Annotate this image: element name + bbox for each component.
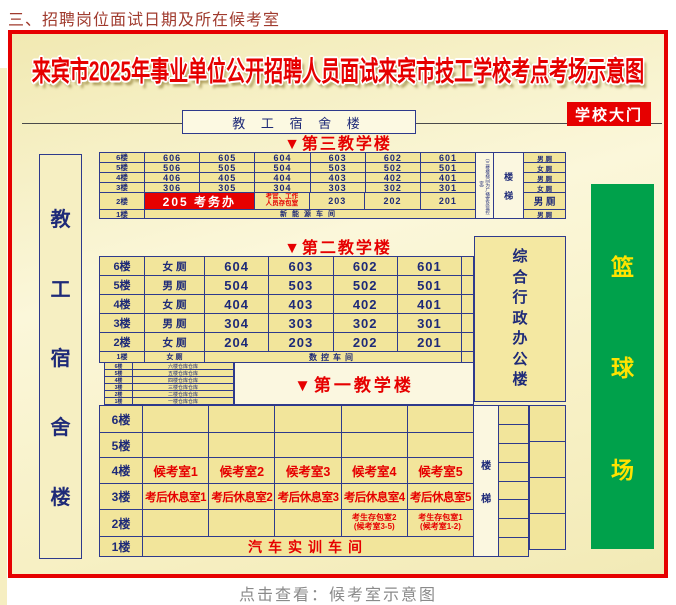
table-row: 3楼 考后休息室1 考后休息室2 考后休息室3 考后休息室4 考后休息室5 bbox=[100, 484, 474, 510]
empty-cell bbox=[209, 433, 275, 458]
building3-toilet-column: 男 厕 女 厕 男 厕 女 厕 男 厕 男 厕 bbox=[524, 153, 566, 219]
building1-table: 6楼 5楼 4楼 候考室1 候考室2 候考室3 候考室4 bbox=[99, 405, 529, 557]
empty-cell bbox=[342, 406, 408, 433]
room-cell: 203 bbox=[310, 193, 365, 210]
exam-venue-map-image[interactable]: 来宾市2025年事业单位公开招聘人员面试来宾市技工学校考点考场示意图 教 工 宿… bbox=[8, 30, 668, 578]
dorm-building-char: 教 bbox=[51, 203, 71, 232]
table-row: 4楼 候考室1 候考室2 候考室3 候考室4 候考室5 bbox=[100, 458, 474, 484]
room-cell: 302 bbox=[334, 314, 398, 333]
table-row: 6楼 六楼仓库仓库 bbox=[105, 363, 234, 370]
empty-cell bbox=[499, 519, 529, 538]
room-cell: 203 bbox=[269, 333, 333, 352]
building1-rooms-grid: 6楼 5楼 4楼 候考室1 候考室2 候考室3 候考室4 bbox=[100, 406, 474, 557]
table-row: 4楼 406 405 404 403 402 401 bbox=[100, 173, 476, 183]
floor-label: 5楼 bbox=[100, 433, 143, 458]
floor-label: 4楼 bbox=[105, 377, 133, 384]
table-row: 6楼 bbox=[100, 406, 474, 433]
toilet-cell: 男 厕 bbox=[524, 173, 566, 183]
building2-edge-column bbox=[462, 257, 474, 363]
room-cell: 402 bbox=[366, 173, 421, 183]
dorm-building-strip: 教 工 宿 舍 楼 bbox=[39, 154, 82, 559]
table-row: 3楼 男 厕 304 303 302 301 bbox=[100, 314, 462, 333]
rest-room-cell: 考后休息室4 bbox=[342, 484, 408, 510]
building2-title: ▼第二教学楼 bbox=[12, 234, 664, 258]
candidate-bag-storage-cell: 考生存包室2 (候考室3-5) bbox=[342, 510, 408, 537]
empty-cell bbox=[275, 510, 341, 537]
basketball-court-char: 球 bbox=[611, 349, 634, 383]
dorm-building-char: 工 bbox=[51, 273, 71, 302]
stairs-char: 梯 bbox=[481, 490, 491, 505]
building3-table: 6楼 606 605 604 603 602 601 5楼 506 505 50… bbox=[99, 152, 566, 219]
toilet-cell: 女 厕 bbox=[145, 257, 205, 276]
annex-rows: 6楼 六楼仓库仓库 5楼 五楼仓库仓库 4楼 四楼仓库仓库 3楼 三楼仓库仓库 … bbox=[105, 363, 234, 405]
page-left-accent-bar bbox=[0, 68, 7, 605]
building3-note-column: （三楼楼梯间为广播室及监控室） bbox=[476, 153, 494, 219]
waiting-room-cell: 候考室1 bbox=[143, 458, 209, 484]
empty-cell bbox=[143, 510, 209, 537]
annex-cell: 四楼仓库仓库 bbox=[133, 377, 234, 384]
table-row: 3楼 三楼仓库仓库 bbox=[105, 384, 234, 391]
dorm-building-char: 舍 bbox=[51, 411, 71, 440]
empty-cell bbox=[499, 538, 529, 557]
floor-label: 5楼 bbox=[105, 370, 133, 377]
empty-cell bbox=[462, 257, 474, 276]
toilet-cell: 男 厕 bbox=[145, 276, 205, 295]
admin-building-char: 行 bbox=[512, 290, 527, 307]
toilet-cell: 男 厕 bbox=[524, 153, 566, 163]
annex-cell: 一楼仓库仓库 bbox=[133, 398, 234, 405]
admin-building-char: 办 bbox=[512, 331, 527, 348]
annex-cell: 三楼仓库仓库 bbox=[133, 384, 234, 391]
floor-label: 2楼 bbox=[100, 510, 143, 537]
waiting-room-cell: 候考室4 bbox=[342, 458, 408, 484]
floor-label: 2楼 bbox=[105, 391, 133, 398]
room-cell: 404 bbox=[255, 173, 310, 183]
workshop-cell: 汽车实训车间 bbox=[143, 537, 474, 557]
room-cell: 602 bbox=[366, 153, 421, 163]
table-row: 5楼 bbox=[100, 433, 474, 458]
building1-stairs-column: 楼 梯 bbox=[474, 406, 499, 557]
section-heading: 三、招聘岗位面试日期及所在候考室 bbox=[8, 6, 280, 30]
room-cell: 302 bbox=[366, 183, 421, 193]
stairs-char: 梯 bbox=[504, 189, 513, 202]
empty-cell bbox=[209, 510, 275, 537]
waiting-room-cell: 候考室5 bbox=[408, 458, 474, 484]
room-cell: 601 bbox=[398, 257, 462, 276]
floor-label: 2楼 bbox=[100, 193, 145, 210]
room-cell: 406 bbox=[145, 173, 200, 183]
empty-cell bbox=[143, 406, 209, 433]
room-cell: 504 bbox=[255, 163, 310, 173]
toilet-cell: 男 厕 bbox=[145, 314, 205, 333]
storage-line: 人员存包室 bbox=[266, 201, 299, 208]
table-row: 2楼 考生存包室2 (候考室3-5) 考生存包室1 (候考室1-2) bbox=[100, 510, 474, 537]
room-cell: 401 bbox=[398, 295, 462, 314]
floor-label: 1楼 bbox=[100, 210, 145, 219]
dorm-building-char: 楼 bbox=[51, 481, 71, 510]
empty-cell bbox=[275, 433, 341, 458]
table-row: 2楼 女 厕 204 203 202 201 bbox=[100, 333, 462, 352]
floor-label: 1楼 bbox=[100, 537, 143, 557]
floor-label: 5楼 bbox=[100, 276, 145, 295]
table-row: 1楼 新能源车间 bbox=[100, 210, 476, 219]
building1-edge-column bbox=[499, 406, 529, 557]
toilet-cell: 女 厕 bbox=[145, 295, 205, 314]
building2-rooms-grid: 6楼 女 厕 604 603 602 601 5楼 男 厕 504 503 50… bbox=[100, 257, 462, 363]
room-cell: 503 bbox=[311, 163, 366, 173]
empty-cell bbox=[499, 463, 529, 482]
building3-stairs-column: 楼 梯 bbox=[494, 153, 524, 219]
rest-room-cell: 考后休息室1 bbox=[143, 484, 209, 510]
basketball-court-char: 场 bbox=[611, 451, 634, 485]
school-gate-label: 学校大门 bbox=[567, 102, 651, 126]
dorm-building-char: 宿 bbox=[51, 342, 71, 371]
table-row: 1楼 汽车实训车间 bbox=[100, 537, 474, 557]
room-cell: 501 bbox=[421, 163, 476, 173]
table-row: 6楼 606 605 604 603 602 601 bbox=[100, 153, 476, 163]
room-cell: 604 bbox=[205, 257, 269, 276]
side-note-cell: （三楼楼梯间为广播室及监控室） bbox=[476, 153, 494, 219]
room-cell: 401 bbox=[421, 173, 476, 183]
toilet-cell: 男 厕 bbox=[524, 210, 566, 219]
room-cell: 404 bbox=[205, 295, 269, 314]
floor-label: 6楼 bbox=[100, 257, 145, 276]
room-cell: 304 bbox=[255, 183, 310, 193]
building1-title: ▼第一教学楼 bbox=[294, 371, 414, 396]
floor-label: 4楼 bbox=[100, 173, 145, 183]
room-cell: 602 bbox=[334, 257, 398, 276]
room-cell: 303 bbox=[311, 183, 366, 193]
stairs-cell: 楼 梯 bbox=[494, 153, 524, 219]
room-cell: 301 bbox=[398, 314, 462, 333]
empty-cell bbox=[530, 442, 566, 478]
workshop-cell: 新能源车间 bbox=[145, 210, 476, 219]
table-row: 5楼 506 505 504 503 502 501 bbox=[100, 163, 476, 173]
room-cell: 503 bbox=[269, 276, 333, 295]
room-cell: 204 bbox=[205, 333, 269, 352]
room-cell: 501 bbox=[398, 276, 462, 295]
toilet-cell: 女 厕 bbox=[145, 333, 205, 352]
empty-cell bbox=[342, 433, 408, 458]
table-row: 3楼 306 305 304 303 302 301 bbox=[100, 183, 476, 193]
empty-cell bbox=[530, 406, 566, 442]
floor-label: 5楼 bbox=[100, 163, 145, 173]
room-cell: 504 bbox=[205, 276, 269, 295]
annex-cell: 六楼仓库仓库 bbox=[133, 363, 234, 370]
empty-cell bbox=[408, 406, 474, 433]
table-row: 2楼 205 考务办 考官、工作 人员存包室 203 202 201 bbox=[100, 193, 476, 210]
room-cell: 502 bbox=[334, 276, 398, 295]
building2-table: 6楼 女 厕 604 603 602 601 5楼 男 厕 504 503 50… bbox=[99, 256, 474, 363]
empty-cell bbox=[408, 433, 474, 458]
rest-room-cell: 考后休息室2 bbox=[209, 484, 275, 510]
empty-cell bbox=[462, 314, 474, 333]
empty-cell bbox=[499, 425, 529, 444]
waiting-room-cell: 候考室3 bbox=[275, 458, 341, 484]
room-cell: 305 bbox=[200, 183, 255, 193]
right-annex-column bbox=[529, 405, 566, 550]
floor-label: 4楼 bbox=[100, 295, 145, 314]
building1-title-box: ▼第一教学楼 bbox=[234, 362, 474, 405]
side-note-text: （三楼楼梯间为广播室及监控室） bbox=[479, 153, 491, 218]
floor-label: 3楼 bbox=[100, 183, 145, 193]
floor-label: 1楼 bbox=[105, 398, 133, 405]
annex-cell: 五楼仓库仓库 bbox=[133, 370, 234, 377]
floor-label: 6楼 bbox=[100, 153, 145, 163]
stairs-char: 楼 bbox=[504, 170, 513, 183]
stairs-char: 楼 bbox=[481, 457, 491, 472]
room-cell: 306 bbox=[145, 183, 200, 193]
empty-cell bbox=[462, 333, 474, 352]
staff-bag-storage-cell: 考官、工作 人员存包室 bbox=[255, 193, 310, 210]
empty-cell bbox=[462, 276, 474, 295]
table-row: 4楼 女 厕 404 403 402 401 bbox=[100, 295, 462, 314]
rest-room-cell: 考后休息室3 bbox=[275, 484, 341, 510]
map-title: 来宾市2025年事业单位公开招聘人员面试来宾市技工学校考点考场示意图 bbox=[12, 50, 664, 89]
room-cell: 603 bbox=[311, 153, 366, 163]
stairs-cell: 楼 梯 bbox=[474, 406, 499, 557]
toilet-cell: 男 厕 bbox=[524, 193, 566, 210]
empty-cell bbox=[275, 406, 341, 433]
empty-cell bbox=[462, 295, 474, 314]
admin-building-char: 楼 bbox=[512, 372, 527, 389]
annex-cells bbox=[530, 406, 566, 550]
table-row: 4楼 四楼仓库仓库 bbox=[105, 377, 234, 384]
room-cell: 202 bbox=[365, 193, 420, 210]
admin-building-char: 合 bbox=[512, 270, 527, 287]
storage-line: (候考室3-5) bbox=[354, 523, 395, 532]
room-cell: 605 bbox=[200, 153, 255, 163]
room-cell: 505 bbox=[200, 163, 255, 173]
floor-label: 4楼 bbox=[100, 458, 143, 484]
annex-cell: 二楼仓库仓库 bbox=[133, 391, 234, 398]
room-cell: 303 bbox=[269, 314, 333, 333]
empty-cell bbox=[209, 406, 275, 433]
building3-rooms-grid: 6楼 606 605 604 603 602 601 5楼 506 505 50… bbox=[100, 153, 476, 219]
floor-label: 3楼 bbox=[105, 384, 133, 391]
room-cell: 403 bbox=[269, 295, 333, 314]
rest-room-cell: 考后休息室5 bbox=[408, 484, 474, 510]
empty-cell bbox=[499, 444, 529, 463]
empty-cell bbox=[530, 514, 566, 550]
room-cell: 301 bbox=[421, 183, 476, 193]
floor-label: 2楼 bbox=[100, 333, 145, 352]
floor-label: 3楼 bbox=[100, 484, 143, 510]
table-row: 5楼 五楼仓库仓库 bbox=[105, 370, 234, 377]
room-cell: 201 bbox=[421, 193, 476, 210]
table-row: 5楼 男 厕 504 503 502 501 bbox=[100, 276, 462, 295]
room-cell: 403 bbox=[311, 173, 366, 183]
storage-line: (候考室1-2) bbox=[420, 523, 461, 532]
table-row: 6楼 女 厕 604 603 602 601 bbox=[100, 257, 462, 276]
room-cell: 606 bbox=[145, 153, 200, 163]
floor-label: 6楼 bbox=[105, 363, 133, 370]
room-cell: 604 bbox=[255, 153, 310, 163]
image-caption-link[interactable]: 点击查看：候考室示意图 bbox=[0, 581, 676, 605]
building3-title: ▼第三教学楼 bbox=[12, 130, 664, 154]
exam-office-cell: 205 考务办 bbox=[145, 193, 255, 210]
admin-building: 综 合 行 政 办 公 楼 bbox=[474, 236, 566, 402]
room-cell: 402 bbox=[334, 295, 398, 314]
admin-building-char: 政 bbox=[512, 311, 527, 328]
basketball-court-char: 篮 bbox=[611, 248, 634, 282]
room-cell: 202 bbox=[334, 333, 398, 352]
basketball-court: 篮 球 场 bbox=[591, 184, 654, 549]
empty-cell bbox=[499, 500, 529, 519]
empty-cell bbox=[530, 478, 566, 514]
candidate-bag-storage-cell: 考生存包室1 (候考室1-2) bbox=[408, 510, 474, 537]
waiting-room-cell: 候考室2 bbox=[209, 458, 275, 484]
room-cell: 502 bbox=[366, 163, 421, 173]
room-cell: 405 bbox=[200, 173, 255, 183]
empty-cell bbox=[499, 482, 529, 501]
toilet-cell: 女 厕 bbox=[524, 183, 566, 193]
toilet-cell: 女 厕 bbox=[524, 163, 566, 173]
room-cell: 201 bbox=[398, 333, 462, 352]
empty-cell bbox=[499, 406, 529, 425]
annex-floors-table: 6楼 六楼仓库仓库 5楼 五楼仓库仓库 4楼 四楼仓库仓库 3楼 三楼仓库仓库 … bbox=[104, 362, 234, 405]
admin-building-char: 综 bbox=[512, 249, 527, 266]
room-cell: 506 bbox=[145, 163, 200, 173]
empty-cell bbox=[143, 433, 209, 458]
room-cell: 304 bbox=[205, 314, 269, 333]
floor-label: 3楼 bbox=[100, 314, 145, 333]
room-cell: 603 bbox=[269, 257, 333, 276]
table-row: 1楼 一楼仓库仓库 bbox=[105, 398, 234, 405]
table-row: 2楼 二楼仓库仓库 bbox=[105, 391, 234, 398]
floor-label: 6楼 bbox=[100, 406, 143, 433]
room-cell: 601 bbox=[421, 153, 476, 163]
admin-building-char: 公 bbox=[512, 352, 527, 369]
